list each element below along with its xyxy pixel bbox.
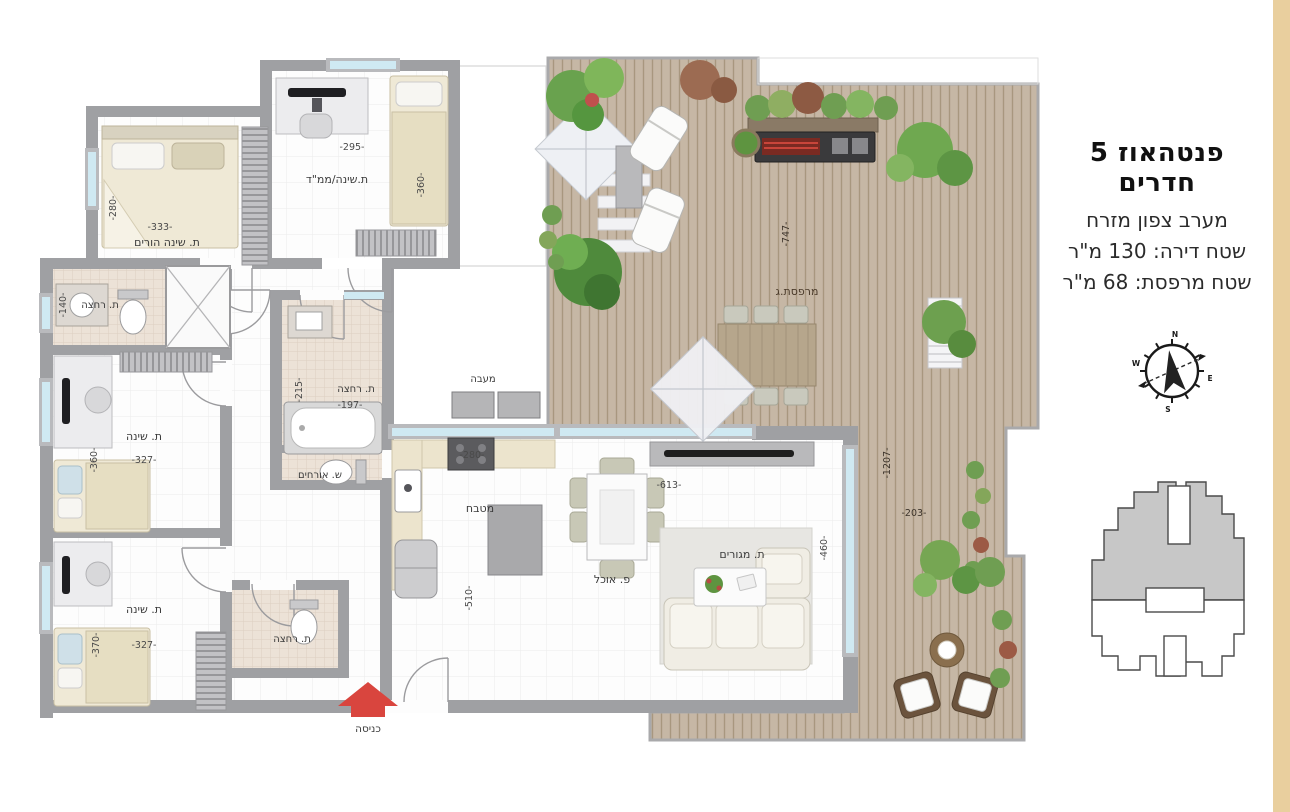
dim-dining-w: -613- — [657, 480, 682, 491]
label-parents: ת. שינה הורים — [134, 236, 200, 249]
compass-w: W — [1132, 359, 1141, 368]
label-bed-mid: ת. שינה — [126, 430, 162, 443]
keyplan-middle-bar — [1146, 588, 1204, 612]
label-hvac: מעבה — [470, 374, 495, 385]
dim-bed-mid-w: -327- — [132, 455, 157, 466]
dim-terrace-d: -747- — [781, 222, 792, 247]
dim-kitchen-w: -280- — [460, 450, 485, 461]
dim-bed-bottom-w: -327- — [132, 640, 157, 651]
bbq-grill — [748, 118, 878, 162]
coffee-table — [694, 568, 766, 606]
closet-mamad — [356, 230, 436, 256]
tv — [664, 450, 794, 457]
dim-kitchen-d: -510- — [464, 586, 475, 611]
building-keyplan — [1092, 482, 1244, 676]
sidebar-accent-strip — [1273, 0, 1290, 812]
label-entrance: כניסה — [355, 723, 381, 735]
roof-edge-outline — [758, 58, 1038, 84]
floorplan-page: ת. שינה הורים ת.שינה/ממ"ד ת. רחצה ת. שינ… — [0, 0, 1290, 812]
bed-mid-desk — [54, 356, 112, 448]
bed-bottom-desk — [54, 542, 112, 606]
mamad-desk — [276, 78, 368, 138]
dim-terrace-side-d: -1207- — [882, 447, 893, 478]
label-terrace: מרפסת.ג — [776, 285, 819, 298]
keyplan-top-notch — [1168, 486, 1190, 544]
bed-mid-bed — [54, 460, 150, 532]
label-bath-central: ת. רחצה — [337, 384, 375, 395]
north-arrow-icon — [1158, 349, 1186, 394]
keyplan-bottom-notch — [1164, 636, 1186, 676]
label-guest-wc: ש. אורחים — [298, 470, 342, 481]
dim-parents-d: -280- — [108, 196, 119, 221]
label-living: ת. מגורים — [719, 548, 764, 561]
label-mamad: ת.שינה/ממ"ד — [306, 173, 368, 186]
label-kitchen: מטבח — [466, 502, 494, 515]
mamad-bed — [390, 76, 448, 226]
kitchen-island — [488, 505, 542, 575]
compass-e: E — [1207, 374, 1212, 383]
closet-entry — [196, 632, 226, 710]
closet-bed-mid — [120, 352, 212, 372]
info-block: פנטהאוז 5 חדרים מערב צפון מזרח שטח דירה:… — [1048, 138, 1266, 294]
apartment-area-line: שטח דירה: 130 מ"ר — [1048, 239, 1266, 263]
label-bed-bottom: ת. שינה — [126, 603, 162, 616]
label-bath-entry: ת. רחצה — [273, 634, 311, 645]
compass-s: S — [1165, 405, 1170, 414]
dim-terrace-side-w: -203- — [902, 508, 927, 519]
orientation-line: מערב צפון מזרח — [1048, 208, 1266, 232]
page-title: פנטהאוז 5 חדרים — [1048, 138, 1266, 198]
floorplan-drawing: ת. שינה הורים ת.שינה/ממ"ד ת. רחצה ת. שינ… — [0, 0, 1290, 812]
compass-n: N — [1172, 330, 1178, 339]
roof-ledge-outline — [452, 66, 546, 266]
dim-bed-mid-d: -360- — [89, 448, 100, 473]
dim-bath-top-d: -140- — [58, 293, 69, 318]
dim-mamad-w: -295- — [340, 142, 365, 153]
dim-bed-bottom-d: -370- — [91, 633, 102, 658]
compass-rose: N S W E — [1132, 330, 1213, 414]
fridge — [395, 540, 437, 598]
dim-living-d: -460- — [819, 536, 830, 561]
dim-mamad-d: -360- — [416, 173, 427, 198]
hvac-units — [452, 392, 540, 418]
label-dining: פ. אוכל — [594, 573, 630, 586]
dim-bath-central-d: -215- — [294, 378, 305, 403]
dim-parents-w: -333- — [148, 222, 173, 233]
dim-bath-central-w: -197- — [338, 400, 363, 411]
closet-hall — [242, 127, 268, 265]
sofa — [664, 598, 810, 670]
balcony-area-line: שטח מרפסת: 68 מ"ר — [1048, 270, 1266, 294]
label-bath-top: ת. רחצה — [81, 300, 119, 311]
